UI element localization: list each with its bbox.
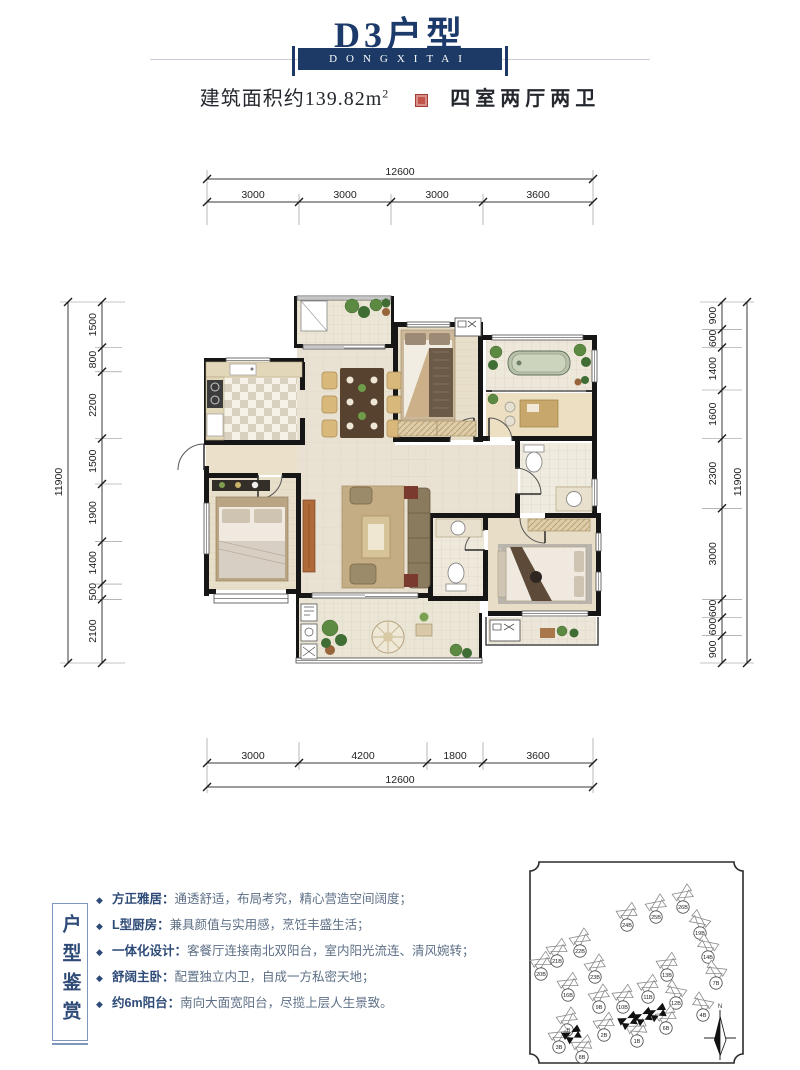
svg-text:7B: 7B	[713, 981, 720, 987]
dim-top-total: 12600	[385, 166, 414, 178]
svg-text:14B: 14B	[703, 955, 713, 961]
dim-right-seg: 900	[707, 307, 719, 325]
feature-item: ◆方正雅居：通透舒适，布局考究，精心营造空间阔度；	[112, 892, 512, 906]
floorplan-poster: D3户型 DONGXITAI 建筑面积约139.82m2四室两厅两卫	[0, 0, 800, 1070]
banner-line-right	[500, 59, 650, 60]
dim-right-total: 11900	[732, 468, 744, 497]
svg-text:3B: 3B	[556, 1045, 563, 1051]
dim-top-seg: 3000	[241, 189, 265, 201]
feature-label: 约6m阳台：	[112, 996, 180, 1010]
feature-text: 南向大面宽阳台，尽揽上层人生景致。	[180, 996, 393, 1010]
svg-text:13B: 13B	[662, 973, 672, 979]
feature-label: 舒阔主卧：	[112, 970, 175, 984]
feature-item: ◆一体化设计：客餐厅连接南北双阳台，室内阳光流连、清风婉转；	[112, 944, 512, 958]
bullet-icon: ◆	[96, 919, 103, 933]
feature-text: 通透舒适，布局考究，精心营造空间阔度；	[175, 892, 413, 906]
dim-right-seg: 3000	[707, 542, 719, 566]
dim-bottom-seg: 4200	[351, 750, 375, 762]
dim-left-seg: 1400	[87, 551, 99, 575]
svg-text:1B: 1B	[634, 1039, 641, 1045]
seal-icon	[415, 94, 428, 107]
dim-right-seg: 600	[707, 599, 719, 617]
svg-text:6B: 6B	[663, 1026, 670, 1032]
bullet-icon: ◆	[96, 997, 103, 1011]
banner-text: DONGXITAI	[329, 53, 471, 65]
dim-bottom-seg: 3600	[526, 750, 550, 762]
svg-text:23B: 23B	[590, 975, 600, 981]
siteplan-map: 26B25B24B19B22B21B14B20B23B13B7B16B11B12…	[522, 853, 750, 1068]
bullet-icon: ◆	[96, 945, 103, 959]
feature-text: 兼具颜值与实用感，烹饪丰盛生活；	[170, 918, 370, 932]
svg-text:21B: 21B	[552, 959, 562, 965]
bullet-icon: ◆	[96, 971, 103, 985]
svg-text:2B: 2B	[601, 1033, 608, 1039]
feature-item: ◆约6m阳台：南向大面宽阳台，尽揽上层人生景致。	[112, 996, 512, 1010]
dim-left-total: 11900	[53, 468, 65, 497]
banner-box: DONGXITAI	[298, 48, 502, 70]
feature-list: ◆方正雅居：通透舒适，布局考究，精心营造空间阔度；◆L型厨房：兼具颜值与实用感，…	[112, 892, 512, 1022]
compass-label: N	[718, 1004, 722, 1010]
dim-bottom-seg: 1800	[443, 750, 467, 762]
dim-left-seg: 1500	[87, 449, 99, 473]
svg-text:9B: 9B	[596, 1005, 603, 1011]
svg-text:11B: 11B	[643, 995, 653, 1001]
svg-text:8B: 8B	[579, 1055, 586, 1061]
feature-label: 方正雅居：	[112, 892, 175, 906]
area-text: 建筑面积约139.82m2	[200, 88, 390, 110]
svg-text:25B: 25B	[651, 915, 661, 921]
dim-left-seg: 1500	[87, 313, 99, 337]
svg-text:26B: 26B	[678, 905, 688, 911]
dim-right-seg: 600	[707, 329, 719, 347]
dim-left-seg: 1900	[87, 501, 99, 525]
svg-text:24B: 24B	[622, 923, 632, 929]
dim-left-seg: 800	[87, 351, 99, 369]
dim-top-seg: 3000	[425, 189, 449, 201]
dim-right-seg: 600	[707, 618, 719, 636]
svg-text:20B: 20B	[536, 972, 546, 978]
banner-endcap-icon	[292, 46, 295, 76]
feature-box-title: 户型鉴赏	[52, 903, 88, 1041]
svg-text:10B: 10B	[618, 1005, 628, 1011]
dim-right-seg: 1400	[707, 357, 719, 381]
dim-top-seg: 3000	[333, 189, 357, 201]
feature-label: L型厨房：	[112, 918, 170, 932]
dim-top-seg: 3600	[526, 189, 550, 201]
feature-text: 客餐厅连接南北双阳台，室内阳光流连、清风婉转；	[187, 944, 475, 958]
dim-left-seg: 2100	[87, 619, 99, 643]
floorplan-drawing: 12600 3000 3000 3000 3600 3000 4200 1800…	[0, 140, 800, 820]
feature-label: 一体化设计：	[112, 944, 187, 958]
feature-item: ◆L型厨房：兼具颜值与实用感，烹饪丰盛生活；	[112, 918, 512, 932]
svg-text:12B: 12B	[671, 1001, 681, 1007]
banner-endcap-icon	[505, 46, 508, 76]
feature-item: ◆舒阔主卧：配置独立内卫，自成一方私密天地；	[112, 970, 512, 984]
bullet-icon: ◆	[96, 893, 103, 907]
dim-bottom-seg: 3000	[241, 750, 265, 762]
layout-text: 四室两厅两卫	[450, 88, 600, 110]
dim-bottom-total: 12600	[385, 774, 414, 786]
feature-box-underline	[52, 1043, 88, 1045]
dim-left-seg: 2200	[87, 393, 99, 417]
feature-text: 配置独立内卫，自成一方私密天地；	[175, 970, 375, 984]
info-row: 建筑面积约139.82m2四室两厅两卫	[0, 82, 800, 111]
svg-text:16B: 16B	[563, 993, 573, 999]
dim-right-seg: 1600	[707, 402, 719, 426]
svg-text:22B: 22B	[575, 949, 585, 955]
svg-text:4B: 4B	[700, 1013, 707, 1019]
banner-line-left	[150, 59, 300, 60]
banner: DONGXITAI	[150, 46, 650, 72]
dim-left-seg: 500	[87, 583, 99, 601]
dim-right-seg: 2300	[707, 462, 719, 486]
dim-right-seg: 900	[707, 640, 719, 658]
